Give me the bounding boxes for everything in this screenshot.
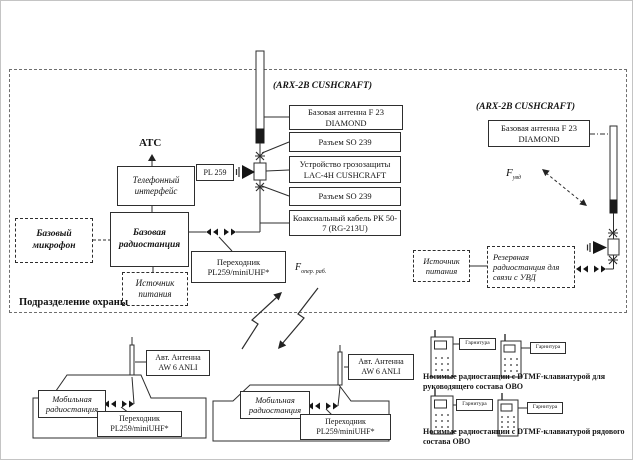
atc-arrow — [148, 154, 156, 166]
callout-base-antenna: Базовая антенна F 23 DIAMOND — [289, 105, 403, 130]
mobile1-radio-box: Мобильная радиостанция — [38, 390, 106, 418]
adapter-box: Переходник PL259/miniUHF* — [191, 251, 286, 283]
base-antenna-mast — [254, 51, 266, 232]
reserve-adapter-connector-icon — [576, 266, 606, 273]
working-frequency-link-arrows — [242, 288, 318, 349]
headset-label-2: Гарнитура — [530, 342, 566, 354]
antenna-system-title: (ARX-2B CUSHCRAFT) — [273, 81, 408, 93]
uhf-adapter-connector-icon — [206, 229, 236, 236]
callout-coax-cable: Коаксиальный кабель РК 50-7 (RG-213U) — [289, 210, 401, 236]
uvd-frequency-label: Fувд — [506, 167, 521, 183]
mobile1-adapter-box: Переходник PL259/miniUHF* — [97, 411, 182, 437]
headset-label-3: Гарнитура — [456, 399, 493, 411]
telephone-interface-box: Телефонный интерфейс — [117, 166, 195, 206]
pl259-box: PL 259 — [196, 164, 234, 181]
reserve-station-box: Резервная радиостанция для связи с УВД — [487, 246, 575, 288]
handheld-radio-1 — [431, 330, 459, 377]
callout-so239-top: Разъем SO 239 — [289, 132, 401, 152]
atc-label: АТС — [139, 137, 161, 151]
headset-label-1: Гарнитура — [459, 338, 496, 350]
security-unit-label: Подразделение охраны — [19, 296, 128, 309]
work-frequency-label: Fопер. раб. — [295, 262, 326, 277]
vehicle-2-adapter-connector-icon — [308, 403, 338, 410]
mobile2-antenna-box: Авт. Антенна AW 6 ANLI — [348, 354, 414, 380]
base-microphone-box: Базовый микрофон — [15, 218, 93, 263]
reserve-pl259-connector-icon — [588, 241, 608, 254]
mobile1-antenna-box: Авт. Антенна AW 6 ANLI — [146, 350, 210, 376]
base-station-box: Базовая радиостанция — [110, 212, 189, 267]
management-radios-caption: Носимые радиостанции с DTMF-клавиатурой … — [423, 372, 631, 392]
headset-label-4: Гарнитура — [527, 402, 563, 414]
work-frequency-sub: опер. раб. — [301, 269, 326, 275]
reserve-power-supply-box: Источник питания — [413, 250, 470, 282]
uvd-frequency-sub: увд — [513, 175, 521, 181]
rank-radios-caption: Носимые радиостанции с DTMF-клавиатурой … — [423, 427, 631, 447]
power-supply-box: Источник питания — [122, 272, 188, 306]
scanned-radio-network-diagram: АТС Телефонный интерфейс Базовый микрофо… — [0, 0, 633, 460]
reserve-base-antenna-box: Базовая антенна F 23 DIAMOND — [488, 120, 590, 147]
pl259-connector-icon — [237, 165, 256, 179]
callout-so239-bottom: Разъем SO 239 — [289, 187, 401, 206]
vehicle-1-adapter-connector-icon — [104, 401, 134, 408]
uvd-link-arrow — [542, 169, 587, 206]
reserve-antenna-title: (ARX-2B CUSHCRAFT) — [476, 102, 596, 114]
callout-lightning-protection: Устройство грозозащиты LAC-4H CUSHCRAFT — [289, 156, 401, 183]
uvd-frequency-symbol: F — [506, 167, 513, 179]
handheld-radio-2 — [501, 334, 530, 377]
mobile2-adapter-box: Переходник PL259/miniUHF* — [300, 414, 391, 440]
